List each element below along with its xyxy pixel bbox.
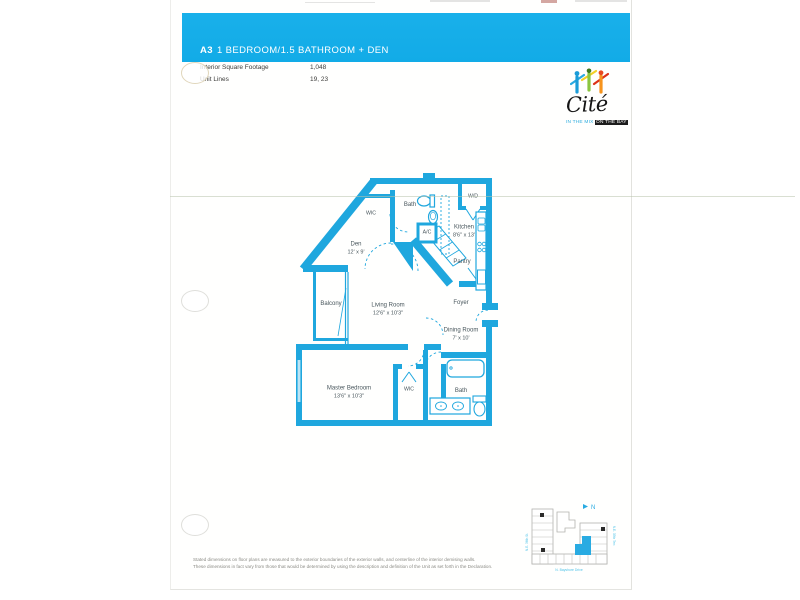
info-row-sqft: Interior Square Footage 1,048 [200, 63, 400, 73]
hole-punch-mark [181, 290, 209, 312]
cite-logo-wordmark: Cité [566, 93, 631, 116]
info-row-unitlines: Unit Lines 19, 23 [200, 75, 400, 85]
kitchen-counter [476, 212, 486, 290]
unit-description: 1 BEDROOM/1.5 BATHROOM + DEN [217, 45, 389, 56]
master-wic-door [402, 372, 416, 382]
scan-artifact-line [170, 196, 795, 197]
room-label-living: Living Room12'6" x 10'3" [371, 303, 404, 318]
street-label-left: N.E. 36th St. [525, 533, 529, 551]
scan-smudge [575, 0, 627, 2]
room-label-balcony: Balcony [320, 301, 341, 309]
double-vanity-icon [430, 398, 470, 414]
room-label-wic-lower: WIC [404, 387, 414, 394]
room-label-ac: A/C [423, 230, 432, 237]
page-title: A31 BEDROOM/1.5 BATHROOM + DEN [200, 46, 389, 56]
master-toilet-icon [473, 396, 486, 416]
svg-text:N: N [591, 505, 595, 511]
info-label: Interior Square Footage [200, 63, 269, 73]
hole-punch-mark [181, 62, 209, 84]
floor-plan: WIC Bath W/D Kitchen8'6" x 13' A/C Den12… [290, 168, 502, 434]
room-label-pantry: Pantry [453, 259, 470, 267]
room-label-bath-lower: Bath [455, 388, 467, 396]
room-label-foyer: Foyer [453, 300, 468, 308]
refrigerator-icon [478, 270, 486, 284]
disclaimer-line2: These dimensions in fact vary from those… [193, 563, 643, 570]
scan-smudge [430, 0, 490, 2]
info-value: 1,048 [310, 63, 326, 73]
room-label-bath-upper: Bath [404, 202, 416, 210]
street-label-right: N.E. 35th Terr. [612, 526, 616, 547]
plan-header-bar: A31 BEDROOM/1.5 BATHROOM + DEN [182, 13, 630, 62]
info-value: 19, 23 [310, 75, 328, 85]
bathtub-icon [447, 360, 484, 377]
scan-smudge-red [541, 0, 557, 3]
room-label-wd: W/D [468, 194, 478, 201]
highlighted-unit [575, 536, 591, 555]
tagline-right: ON THE BAY [595, 120, 628, 125]
room-label-dining: Dining Room7' x 10' [444, 328, 479, 343]
room-label-kitchen: Kitchen8'6" x 13' [453, 225, 475, 240]
cite-logo-tagline: IN THE MIX ON THE BAY [566, 120, 636, 125]
room-label-master: Master Bedroom13'6" x 10'3" [327, 386, 371, 401]
scan-smudge [305, 2, 375, 3]
hole-punch-mark [181, 514, 209, 536]
room-label-wic-upper: WIC [366, 211, 376, 218]
tagline-left: IN THE MIX [566, 120, 594, 125]
powder-room-sink-icon [429, 211, 438, 224]
disclaimer-text: Stated dimensions on floor plans are mea… [193, 556, 643, 571]
bedroom-window [297, 360, 301, 402]
disclaimer-line1: Stated dimensions on floor plans are mea… [193, 556, 643, 563]
unit-code: A3 [200, 45, 213, 56]
room-label-den: Den12' x 9' [347, 242, 364, 257]
north-arrow-icon: N [583, 504, 595, 511]
